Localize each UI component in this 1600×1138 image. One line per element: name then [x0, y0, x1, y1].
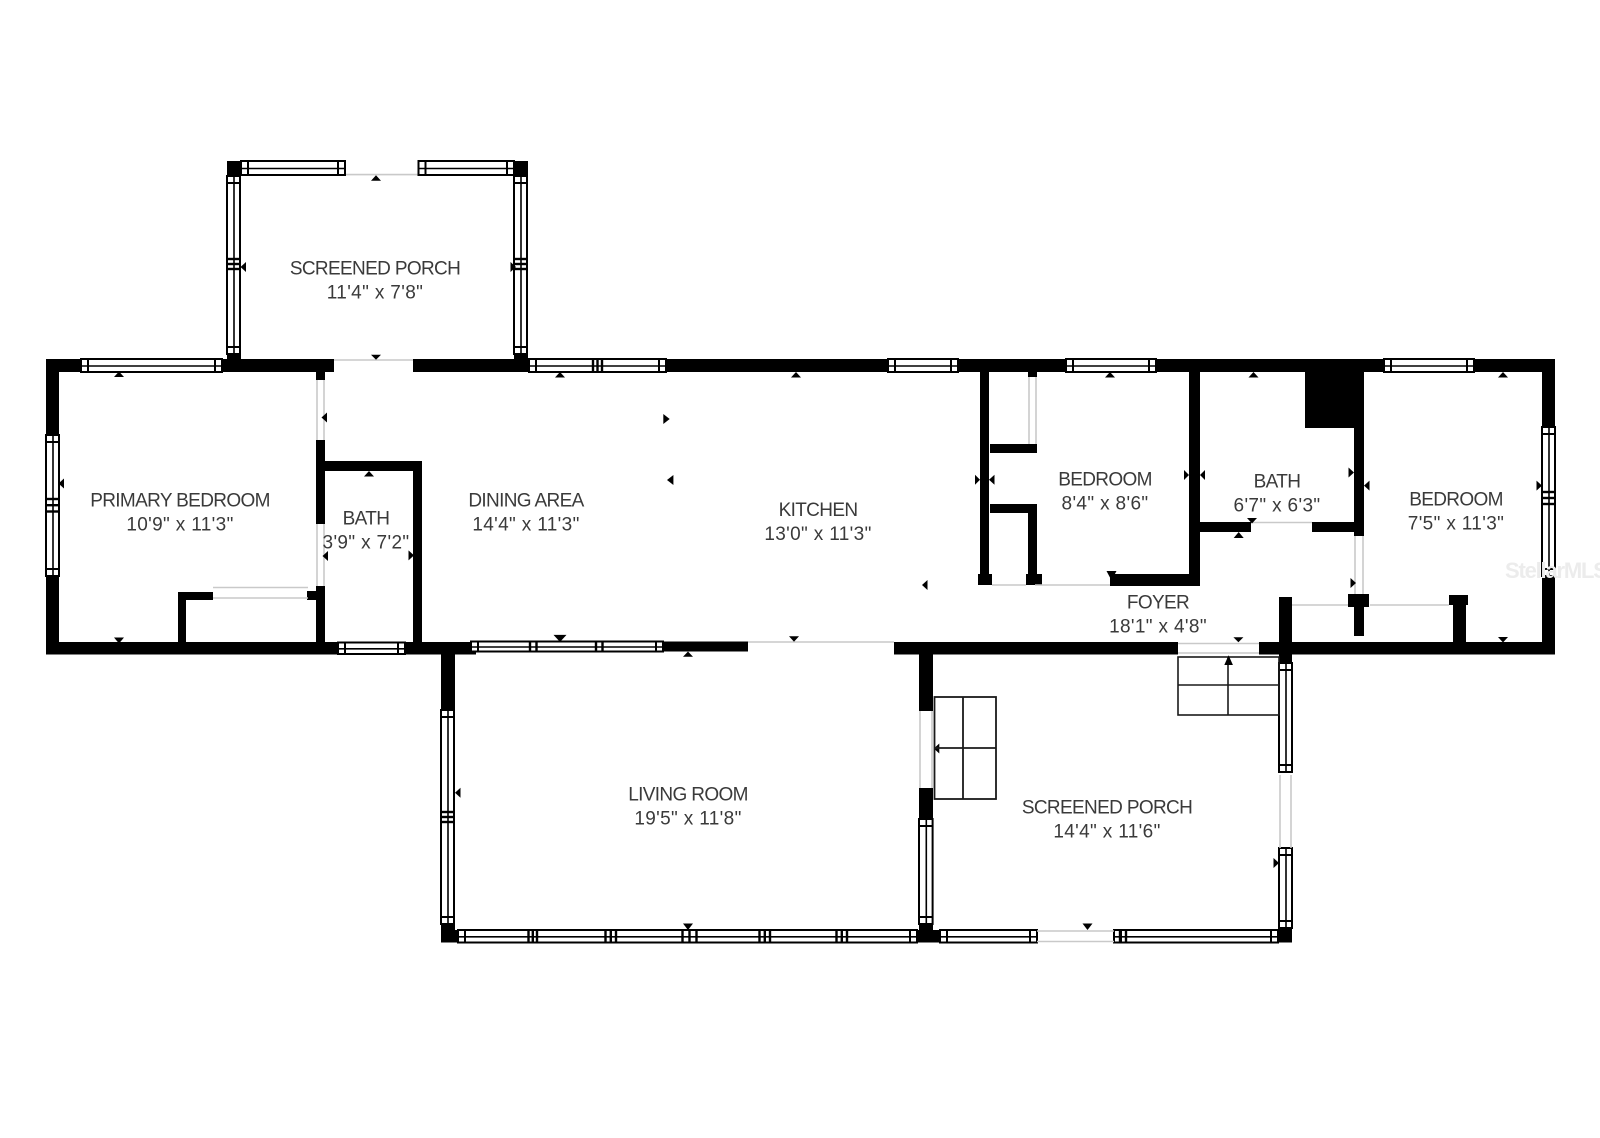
svg-text:KITCHEN: KITCHEN: [779, 500, 858, 521]
svg-text:13'0" x 11'3": 13'0" x 11'3": [764, 524, 871, 545]
svg-text:BATH: BATH: [1254, 472, 1301, 493]
svg-text:6'7" x 6'3": 6'7" x 6'3": [1234, 496, 1321, 517]
svg-text:PRIMARY BEDROOM: PRIMARY BEDROOM: [90, 491, 270, 512]
svg-text:BEDROOM: BEDROOM: [1058, 470, 1152, 491]
svg-text:11'4" x 7'8": 11'4" x 7'8": [327, 283, 423, 304]
svg-text:DINING AREA: DINING AREA: [468, 491, 584, 512]
svg-text:14'4" x 11'6": 14'4" x 11'6": [1053, 822, 1160, 843]
svg-text:18'1" x 4'8": 18'1" x 4'8": [1109, 617, 1207, 638]
svg-text:SCREENED PORCH: SCREENED PORCH: [1022, 798, 1192, 819]
svg-text:LIVING ROOM: LIVING ROOM: [628, 785, 748, 806]
svg-text:SCREENED PORCH: SCREENED PORCH: [290, 259, 460, 280]
svg-text:14'4" x 11'3": 14'4" x 11'3": [472, 515, 579, 536]
svg-text:19'5" x 11'8": 19'5" x 11'8": [634, 809, 741, 830]
svg-text:StellarMLS: StellarMLS: [1505, 558, 1600, 583]
svg-text:BATH: BATH: [343, 509, 390, 530]
svg-text:8'4" x 8'6": 8'4" x 8'6": [1062, 494, 1149, 515]
svg-text:FOYER: FOYER: [1127, 593, 1189, 614]
svg-text:7'5" x 11'3": 7'5" x 11'3": [1408, 514, 1504, 535]
svg-text:BEDROOM: BEDROOM: [1409, 490, 1503, 511]
svg-text:3'9" x 7'2": 3'9" x 7'2": [323, 533, 410, 554]
svg-text:10'9" x 11'3": 10'9" x 11'3": [126, 515, 233, 536]
